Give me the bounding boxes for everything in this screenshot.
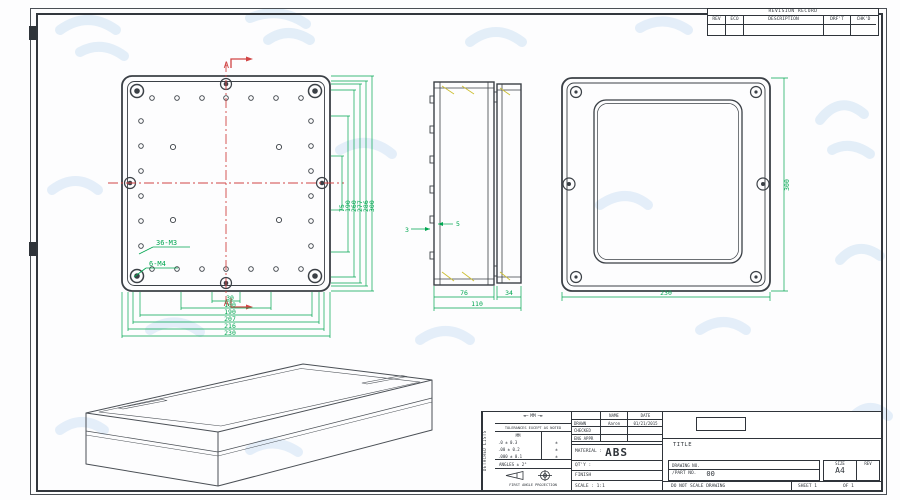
svg-text:110: 110 (471, 300, 483, 308)
material-row: MATERIAL : ABS (572, 444, 662, 460)
of-label: OF 1 (843, 482, 881, 490)
date-header: DATE (628, 412, 663, 420)
centerlines (108, 62, 344, 304)
tolerance-row: .0 ± 0.3 (495, 439, 541, 446)
title-column: TITLE DRAWING NO. /PART NO. 00 SIZE A4 R… (663, 412, 881, 490)
sheet-label: SHEET 1 (791, 482, 843, 490)
back-view-dim-labels-right: 75 190 260 277 286 300 (338, 200, 376, 212)
scale-row: SCALE : 1:1 (572, 480, 662, 492)
side-view-dims (411, 222, 521, 311)
tolerance-mark: ± (542, 439, 571, 446)
material-label: MATERIAL : (575, 450, 602, 455)
tolerance-table: MM .0 ± 0.3 .00 ± 0.2 .000 ± 0.1 ± ± ± (495, 432, 571, 460)
side-view-hatch (442, 86, 510, 281)
tolerance-mark: ± (542, 453, 571, 460)
material-value: ABS (605, 447, 628, 458)
tolerance-row: .00 ± 0.2 (495, 446, 541, 453)
section-label-top: A (224, 61, 230, 71)
side-view (430, 82, 521, 285)
title-block-side-strip: DETACHED LISTS (482, 412, 495, 490)
title-block: DETACHED LISTS ◄─ MM ─► TOLERANCES EXCEP… (481, 411, 882, 491)
svg-text:5: 5 (456, 220, 460, 228)
title-label: TITLE (673, 443, 692, 449)
rev-cell: REV (857, 461, 879, 480)
back-view-dim-labels-bottom: 30 100 190 207 216 230 (224, 294, 236, 337)
units-label: MM (530, 415, 535, 420)
isometric-view (86, 364, 432, 486)
svg-text:230: 230 (224, 329, 236, 337)
name-header: NAME (601, 412, 628, 420)
title-block-bottom-row: DO NOT SCALE DRAWING SHEET 1 OF 1 (663, 481, 881, 490)
size-cell: SIZE A4 (824, 461, 857, 480)
finish-row: FINISH (572, 470, 662, 480)
eng-appr-label: ENG APPR (572, 435, 601, 443)
checked-label: CHECKED (572, 427, 601, 435)
part-no-row: /PART NO. 00 (668, 469, 820, 481)
tolerance-mark: ± (542, 446, 571, 453)
front-view-dims (562, 78, 788, 301)
drawn-label: DRAWN (572, 420, 601, 428)
tolerance-col-header: MM (495, 432, 541, 439)
front-view-dim-height: 300 (783, 179, 791, 191)
first-angle-projection-icon (503, 470, 563, 481)
svg-text:300: 300 (368, 200, 376, 212)
svg-text:76: 76 (460, 289, 468, 297)
drawn-date: 01/21/2015 (628, 420, 663, 428)
tolerance-row: .000 ± 0.1 (495, 453, 541, 460)
do-not-scale-label: DO NOT SCALE DRAWING (663, 482, 791, 490)
front-view-dim-width: 230 (660, 289, 672, 297)
tolerance-title: TOLERANCES EXCEPT AS NOTED (495, 424, 571, 432)
title-separator (663, 438, 881, 439)
approvals-column: NAME DATE DRAWN Aaron 01/21/2015 CHECKED… (572, 412, 663, 490)
size-value: A4 (824, 467, 856, 475)
projection-label: FIRST ANGLE PROJECTION (495, 484, 571, 488)
size-rev-box: SIZE A4 REV (823, 460, 880, 481)
svg-text:34: 34 (505, 289, 513, 297)
units-arrow-left-icon: ◄─ (523, 415, 528, 420)
drawn-name: Aaron (601, 420, 628, 428)
thread-label-36-m3: 36-M3 (156, 239, 177, 247)
units-row: ◄─ MM ─► (495, 412, 571, 424)
back-view-dims-right (331, 76, 374, 291)
projection-cell: FIRST ANGLE PROJECTION (495, 470, 571, 489)
thread-label-6-m4: 6-M4 (149, 260, 166, 268)
units-arrow-right-icon: ─► (538, 415, 543, 420)
qty-row: QT'Y : (572, 460, 662, 470)
svg-text:3: 3 (405, 226, 409, 234)
part-no-label: /PART NO. (672, 472, 696, 477)
name-date-table: NAME DATE DRAWN Aaron 01/21/2015 CHECKED… (572, 412, 662, 442)
drawing-sheet: REVISION RECORD REV ECO DESCRIPTION DRF'… (0, 0, 900, 500)
logo-box (696, 417, 746, 431)
tolerance-column: ◄─ MM ─► TOLERANCES EXCEPT AS NOTED MM .… (495, 412, 572, 490)
angles-tolerance: ANGLES ± 2° (495, 460, 571, 469)
part-no-value: 00 (706, 471, 714, 478)
front-view (562, 78, 770, 291)
